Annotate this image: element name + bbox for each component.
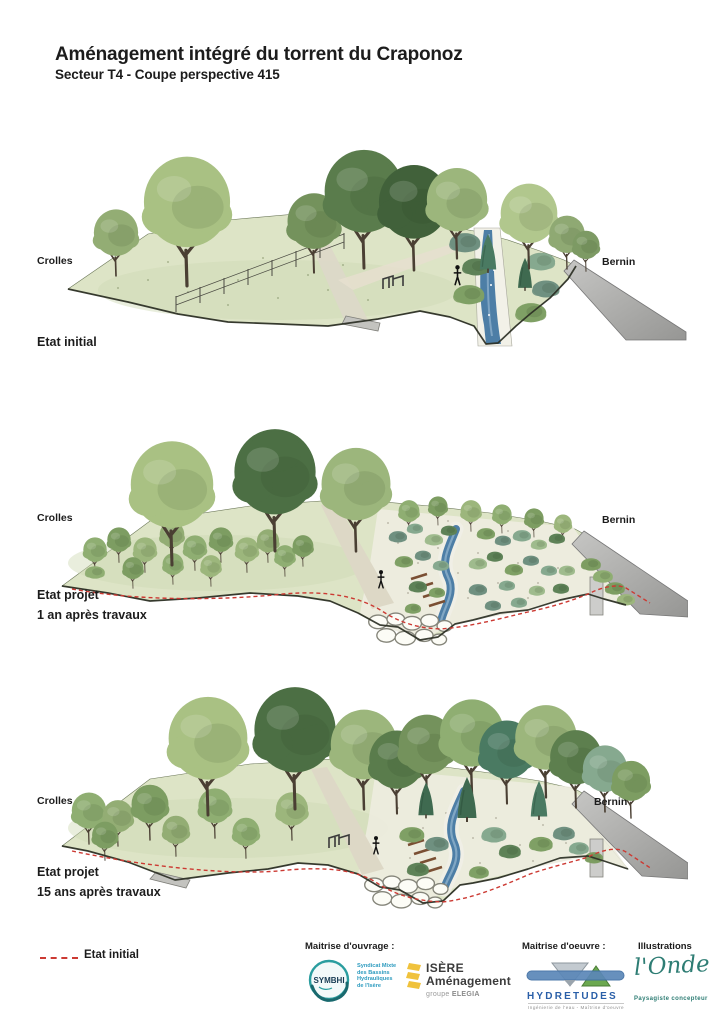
hydretudes-logo-icon (526, 958, 626, 990)
plan-sheet: Aménagement intégré du torrent du Crapon… (0, 0, 724, 1024)
symbhi-acronym: SYMBHI (313, 976, 344, 985)
hydretudes-tagline: Ingénierie de l'eau - Maîtrise d'oeuvre (528, 1003, 624, 1010)
legend-label: Etat initial (84, 949, 139, 961)
road (564, 260, 686, 340)
stream (441, 529, 456, 621)
caption-etat-initial: Etat initial (37, 332, 97, 352)
caption-projet-15ans: Etat projet 15 ans après travaux (37, 862, 161, 902)
illustrations-heading: Illustrations (638, 941, 692, 952)
isere-logo-icon (406, 963, 422, 991)
label-bernin: Bernin (602, 514, 635, 526)
section-etat-initial: Crolles Bernin Etat initial (0, 128, 724, 378)
label-bernin: Bernin (594, 796, 627, 808)
label-crolles: Crolles (37, 795, 73, 807)
page-title: Aménagement intégré du torrent du Crapon… (55, 44, 463, 66)
symbhi-description: Syndicat Mixte des Bassins Hydrauliques … (357, 963, 407, 989)
etat-initial-illustration (28, 130, 688, 366)
isere-subname: Aménagement (426, 975, 511, 988)
caption-projet-1an: Etat projet 1 an après travaux (37, 585, 147, 625)
section-projet-15ans: Crolles Bernin Etat projet 15 ans après … (0, 665, 724, 933)
label-crolles: Crolles (37, 255, 73, 267)
label-bernin: Bernin (602, 256, 635, 268)
hydretudes-name: HYDRETUDES (527, 991, 618, 1002)
label-crolles: Crolles (37, 512, 73, 524)
onde-logo: l'Onde (633, 951, 710, 981)
section-projet-1an: Crolles Bernin Etat projet 1 an après tr… (0, 405, 724, 665)
legend-dashed-line (40, 957, 78, 959)
symbhi-logo: SYMBHI (306, 958, 352, 1006)
ouvrage-heading: Maitrise d'ouvrage : (305, 941, 394, 952)
onde-tagline: Paysagiste concepteur (634, 996, 708, 1002)
oeuvre-heading: Maitrise d'oeuvre : (522, 941, 606, 952)
isere-group: groupe ELEGIA (426, 991, 511, 998)
page-subtitle: Secteur T4 - Coupe perspective 415 (55, 67, 280, 82)
isere-logo-text: ISÈRE Aménagement groupe ELEGIA (426, 962, 511, 998)
